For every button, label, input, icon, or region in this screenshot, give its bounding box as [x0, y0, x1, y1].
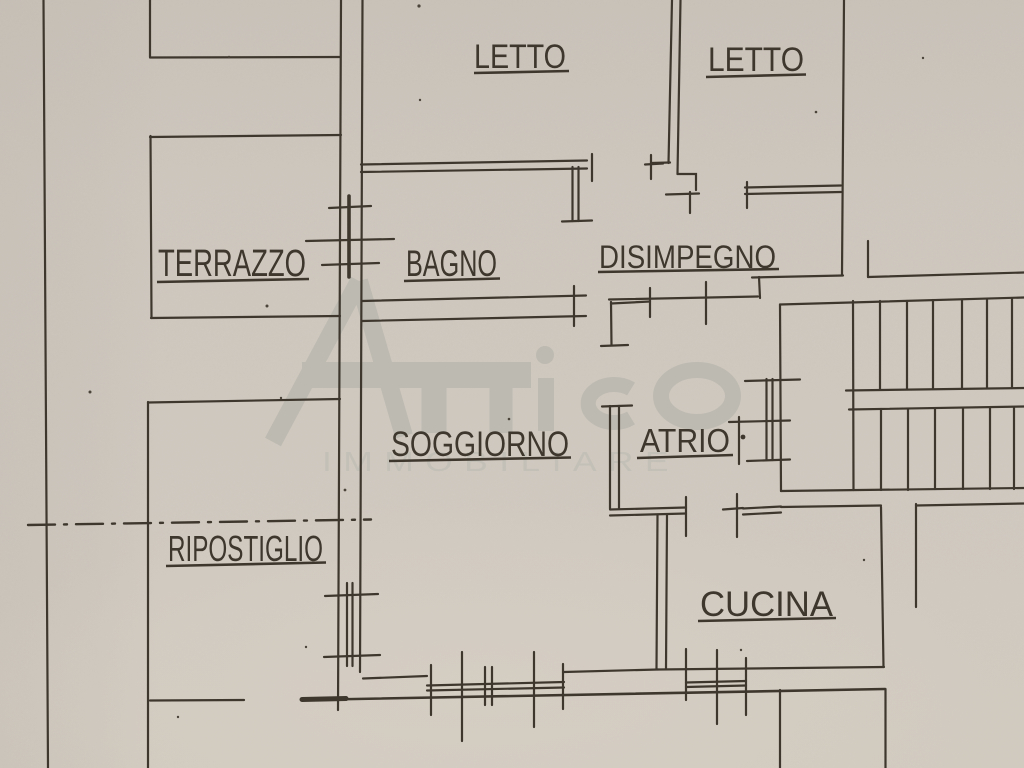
svg-text:ATRIO: ATRIO: [640, 422, 730, 459]
svg-text:LETTO: LETTO: [708, 41, 804, 79]
